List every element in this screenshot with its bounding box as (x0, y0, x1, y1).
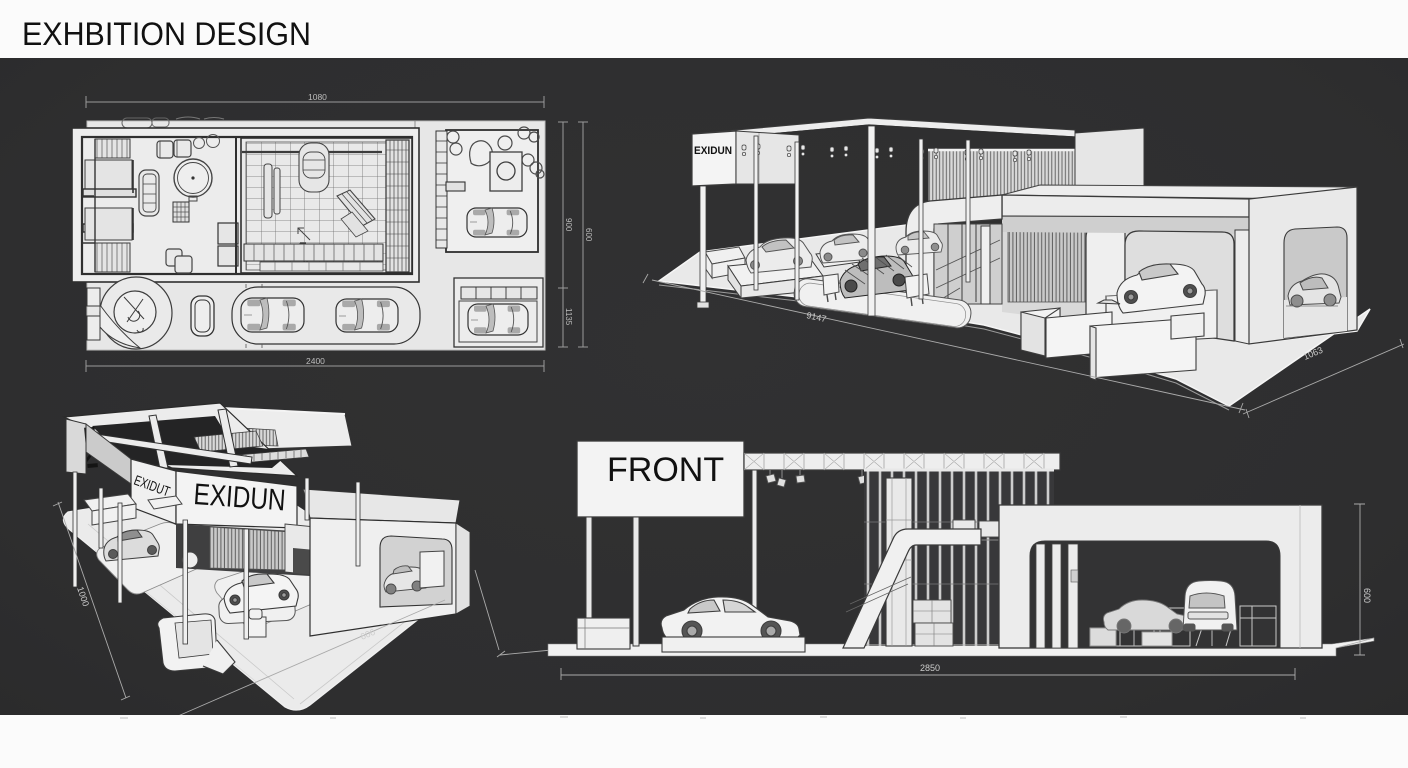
svg-text:FRONT: FRONT (607, 451, 724, 489)
svg-text:EXIDUN: EXIDUN (193, 478, 287, 517)
svg-text:1080: 1080 (308, 92, 327, 102)
svg-text:EXHBITION DESIGN: EXHBITION DESIGN (22, 16, 311, 52)
svg-text:2850: 2850 (920, 663, 940, 673)
svg-text:1135: 1135 (564, 308, 573, 326)
svg-text:600: 600 (584, 228, 593, 242)
svg-text:EXIDUN: EXIDUN (694, 145, 732, 157)
svg-text:900: 900 (564, 218, 573, 232)
svg-text:2400: 2400 (306, 356, 325, 366)
svg-text:600: 600 (1362, 588, 1372, 603)
